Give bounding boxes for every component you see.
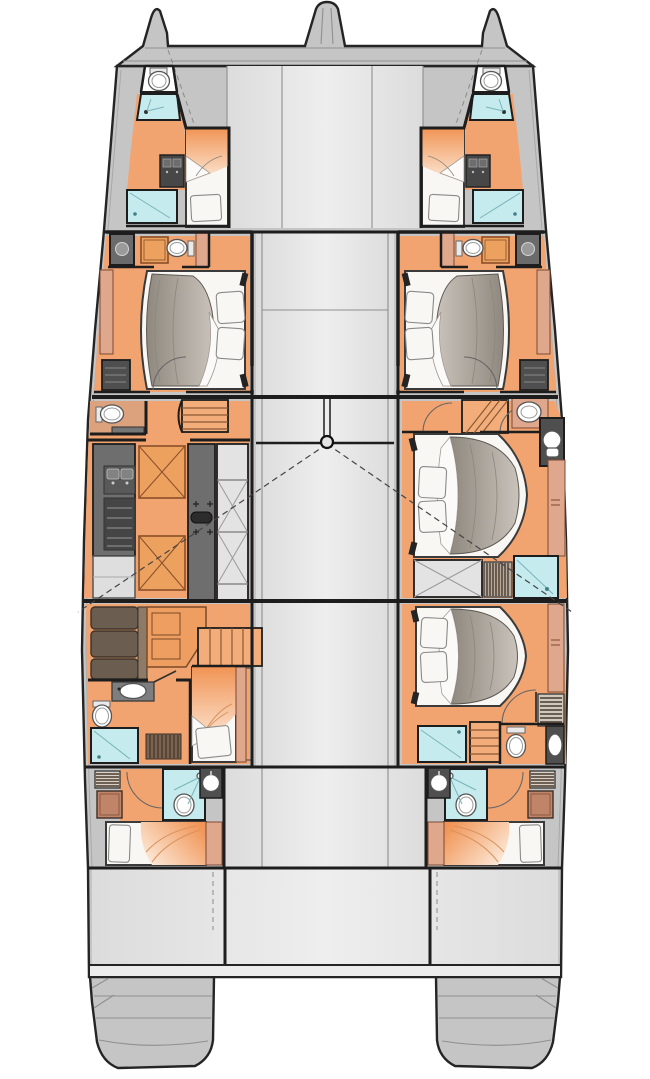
- port-forward-cabin: [94, 232, 252, 394]
- starboard-aft-cabin: [402, 604, 566, 764]
- starboard-master-cabin: [402, 398, 567, 598]
- cabin-stairs: [470, 722, 500, 762]
- berth-pillow: [196, 725, 232, 758]
- duvet: [147, 274, 214, 386]
- sink-icon: [203, 775, 220, 792]
- faucet-icon: [118, 688, 121, 691]
- foredeck-panel: [227, 66, 423, 228]
- pillow: [216, 327, 245, 360]
- port-crew-cabin: [95, 768, 222, 865]
- stern-beam: [89, 965, 561, 977]
- side-shelf: [100, 270, 113, 354]
- berth-pillow: [108, 825, 130, 863]
- pillow: [216, 291, 245, 324]
- aft-center-panel: [225, 767, 425, 868]
- hanging-locker: [548, 460, 565, 556]
- sofa-front: [138, 607, 147, 679]
- sofa-cushion: [91, 607, 138, 629]
- sink-icon: [548, 734, 562, 756]
- cooktop-icon: [191, 512, 212, 523]
- aft-deck: [92, 869, 558, 965]
- cabin-floor: [120, 769, 163, 821]
- sofa-cushion: [91, 631, 138, 657]
- starboard-transom-steps: [436, 974, 560, 1068]
- port-galley: [84, 400, 250, 600]
- starboard-forward-cabin: [398, 232, 556, 394]
- bow-crossbeam: [117, 2, 533, 66]
- drain-icon: [545, 587, 549, 591]
- starboard-crew-cabin: [428, 768, 555, 865]
- drain-icon: [133, 212, 137, 216]
- mast-ring: [321, 436, 333, 448]
- berth-pillow: [190, 194, 221, 222]
- shower-tray: [141, 237, 168, 263]
- bed-surround: [236, 667, 246, 762]
- vanity-counter: [137, 94, 180, 120]
- port-aft-cabin: [86, 604, 262, 764]
- locker: [97, 791, 122, 818]
- drain-icon: [97, 755, 101, 759]
- bed-surround: [206, 822, 222, 865]
- port-transom-steps: [90, 974, 214, 1068]
- berth-blanket: [141, 822, 206, 865]
- drain-icon: [457, 730, 461, 734]
- oven-drawers: [104, 498, 135, 550]
- pillow: [420, 617, 448, 648]
- bath-closet: [196, 233, 209, 267]
- pillow: [420, 651, 448, 682]
- toilet-icon: [543, 431, 561, 449]
- toilet-tank: [507, 727, 525, 733]
- cabin-stairs: [462, 400, 508, 433]
- sink-icon: [120, 684, 146, 699]
- galley-stairs: [182, 400, 228, 432]
- floorplan-stage: Sailing catamaran deck floor plan: [0, 0, 650, 1079]
- slatted-hatch: [146, 734, 181, 759]
- pillow: [418, 500, 447, 532]
- pillow: [418, 466, 447, 498]
- sofa-cushion: [91, 659, 138, 679]
- shower-drain-icon: [116, 243, 129, 256]
- hanging-locker: [548, 604, 564, 692]
- catamaran-floorplan: Sailing catamaran deck floor plan: [0, 0, 650, 1079]
- toilet-tank: [188, 241, 194, 256]
